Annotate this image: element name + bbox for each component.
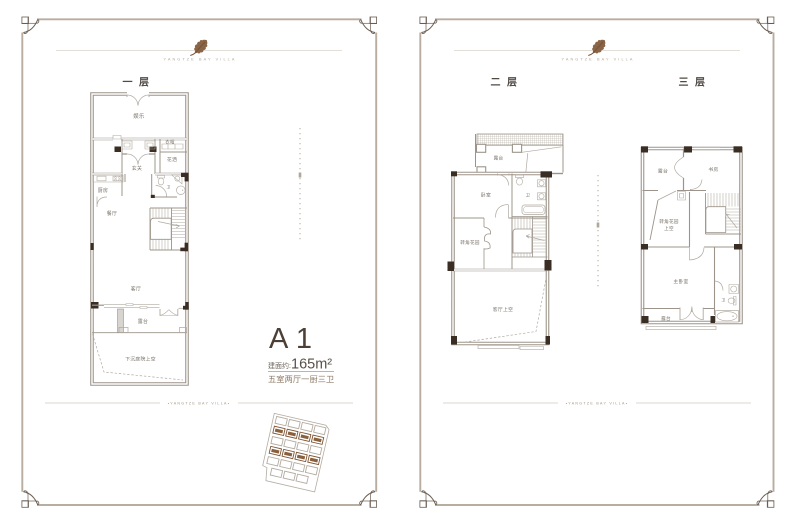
svg-text:二层: 二层: [491, 77, 524, 89]
svg-text:露台: 露台: [138, 318, 148, 325]
svg-text:玄关: 玄关: [132, 165, 142, 172]
svg-text:卧室: 卧室: [481, 192, 491, 199]
svg-text:客厅: 客厅: [131, 286, 141, 293]
svg-text:卫: 卫: [166, 186, 170, 190]
svg-text:主卧室: 主卧室: [673, 278, 688, 285]
svg-text:书房: 书房: [708, 166, 718, 173]
svg-text:转角花园: 转角花园: [659, 218, 679, 225]
svg-text:转角花园: 转角花园: [460, 239, 480, 246]
svg-text:露台: 露台: [661, 315, 671, 322]
svg-text:三层: 三层: [679, 77, 712, 89]
svg-text:一层: 一层: [123, 77, 156, 89]
svg-text:露台: 露台: [494, 155, 504, 162]
svg-text:A1: A1: [269, 323, 319, 355]
svg-text:客厅上空: 客厅上空: [493, 306, 513, 313]
svg-text:五室两厅一厨三卫: 五室两厅一厨三卫: [268, 374, 334, 384]
svg-text:花洒: 花洒: [167, 156, 177, 163]
svg-text:餐厅: 餐厅: [107, 210, 117, 217]
svg-text:卫: 卫: [721, 298, 725, 303]
svg-text:下沉庭院上空: 下沉庭院上空: [125, 356, 156, 363]
svg-text:•YANGTZE BAY VILLA•: •YANGTZE BAY VILLA•: [168, 402, 231, 406]
svg-text:衣帽: 衣帽: [165, 139, 175, 146]
svg-text:YANGTZE BAY VILLA: YANGTZE BAY VILLA: [561, 58, 634, 62]
svg-text:•YANGTZE BAY VILLA•: •YANGTZE BAY VILLA•: [566, 402, 629, 406]
svg-text:建面约:: 建面约:: [268, 361, 291, 370]
svg-text:娱乐: 娱乐: [133, 112, 145, 120]
svg-text:露台: 露台: [658, 168, 668, 175]
svg-text:YANGTZE BAY VILLA: YANGTZE BAY VILLA: [163, 58, 236, 62]
svg-text:卫: 卫: [526, 193, 531, 198]
svg-text:上空: 上空: [664, 225, 674, 231]
svg-text:厨房: 厨房: [98, 187, 108, 194]
svg-text:165m²: 165m²: [291, 357, 332, 373]
